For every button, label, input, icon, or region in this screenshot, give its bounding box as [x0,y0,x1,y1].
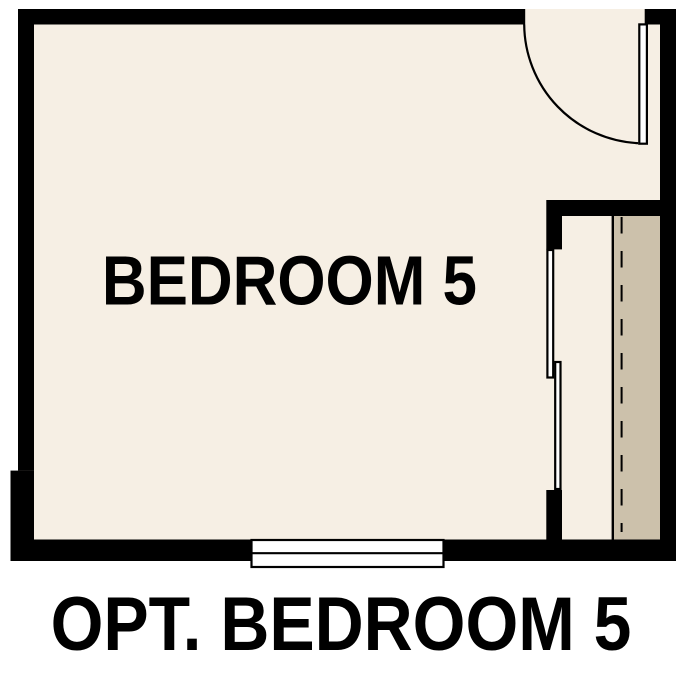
svg-text:OPT. BEDROOM 5: OPT. BEDROOM 5 [51,583,632,667]
svg-text:BEDROOM 5: BEDROOM 5 [102,241,477,319]
